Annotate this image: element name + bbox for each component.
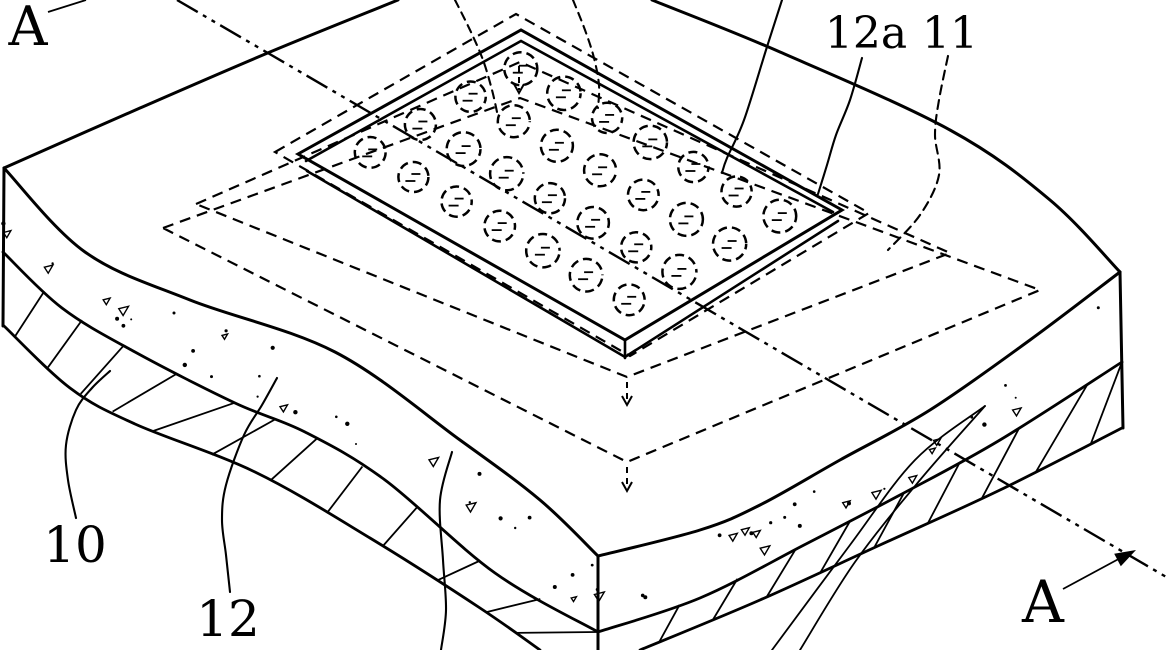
stipple-triangle (1013, 408, 1022, 416)
stipple-dot (571, 573, 575, 577)
stipple-dot (257, 396, 259, 398)
ref-label-12: 12 (196, 590, 260, 648)
section-label-a-bottom-right: A (1021, 568, 1065, 636)
section-label-a-top-left: A (8, 0, 49, 58)
stud (504, 52, 537, 85)
stud (722, 176, 752, 206)
stipple-dot (553, 585, 557, 589)
layer-bottom-left (3, 325, 540, 650)
stud (584, 154, 616, 186)
stud (442, 187, 472, 217)
stipple-dot (469, 501, 471, 503)
ref-label-11: 11 (922, 8, 978, 59)
stipple-dot (813, 490, 816, 493)
hatch-line (15, 291, 44, 336)
stipple-dot (1015, 397, 1017, 399)
stipple-triangle (119, 306, 129, 315)
hatch-line (81, 345, 124, 394)
stipple-dot (1097, 306, 1100, 309)
stipple-dot (335, 416, 338, 419)
slab-left-vertical-edge (3, 168, 4, 326)
stud (541, 130, 573, 162)
stipple-dot (528, 516, 532, 520)
stipple-dot (769, 521, 772, 524)
stud (455, 82, 485, 112)
stipple-dot (798, 524, 802, 528)
stipple-dot (478, 472, 482, 476)
stud (592, 103, 622, 133)
slab-right-vertical-edge (1120, 272, 1123, 428)
stipple-triangle (760, 546, 770, 555)
stipple-triangle (729, 533, 737, 541)
stipple-dot (1004, 384, 1007, 387)
stipple-dot (293, 410, 297, 414)
ref-label-12a: 12a (825, 8, 907, 59)
leader-lines (66, 0, 985, 650)
stud (484, 211, 515, 242)
leader-11-dashed (888, 56, 948, 250)
section-pointer-top-left (48, 0, 86, 12)
hatch-line (383, 507, 417, 546)
stipple-dot (51, 262, 53, 264)
leader-right-sliver-down (800, 406, 985, 650)
layer-boundary-left (3, 252, 598, 632)
leader-bottom-cutoff (440, 452, 452, 650)
hatch-line (113, 374, 178, 412)
stipple-triangle (872, 490, 881, 499)
stipple-dot (596, 588, 599, 591)
stipple-triangle (571, 597, 576, 602)
patent-figure: A 12a 11 10 12 A (0, 0, 1170, 650)
stud (713, 227, 746, 260)
stipple-dot (591, 564, 594, 567)
section-pointer-bottom-right (1063, 555, 1126, 589)
hatch-line (153, 403, 235, 431)
stipple-triangle (103, 298, 110, 305)
stipple-dot (355, 443, 357, 445)
hatch-line (270, 439, 316, 481)
stipple-triangle (280, 405, 288, 412)
stipple-dot (115, 317, 119, 321)
stipple-dot (271, 346, 275, 350)
figure-canvas: A 12a 11 10 12 A (0, 0, 1170, 650)
hatch-line (48, 320, 82, 367)
stipple-triangle (44, 265, 53, 273)
leader-top-dashed-2 (573, 0, 599, 108)
stipple-dot (122, 324, 126, 328)
stipple-triangle (929, 448, 935, 454)
stud (570, 259, 603, 292)
stipple-dot (718, 533, 722, 537)
stipple-triangle (429, 457, 439, 466)
stipple-dot (130, 318, 132, 320)
stud (628, 180, 659, 211)
tray-lip-edge (307, 171, 838, 357)
stipple-triangle (909, 476, 917, 484)
stipple-dot (210, 375, 213, 378)
recess-mid-outline (196, 62, 950, 377)
stud (763, 200, 796, 233)
stud (526, 234, 559, 267)
stud (577, 207, 609, 239)
stud (662, 255, 696, 289)
stipple-dot (793, 502, 797, 506)
stipple-dot (883, 488, 885, 490)
stipple-dot (173, 312, 176, 315)
stipple-triangle (466, 503, 476, 512)
stud (498, 105, 530, 137)
stipple-dot (225, 329, 228, 332)
stipple-dot (1, 221, 5, 225)
stipple-dot (258, 375, 261, 378)
stud (670, 203, 703, 236)
stipple-dot (499, 516, 503, 520)
stipple-dot (982, 422, 986, 426)
stipple-dot (783, 516, 786, 519)
tray-rim-inner-edge (306, 41, 833, 212)
recessed-tray (298, 30, 842, 358)
hatch-line (327, 467, 363, 514)
stipple-dot (191, 349, 195, 353)
stipple-dot (643, 595, 647, 599)
stipple-triangle (222, 334, 228, 339)
stud (398, 162, 428, 192)
leader-10 (66, 371, 110, 518)
stipple-dot (749, 531, 753, 535)
stipple-dot (345, 422, 349, 426)
stud (621, 232, 651, 262)
stipple-triangle (753, 530, 761, 537)
stipple-dot (514, 527, 516, 529)
stud (614, 284, 645, 315)
hatch-layer-left-face (15, 291, 598, 633)
stipple-dot (183, 363, 187, 367)
stipple-triangle (741, 528, 749, 536)
section-chain-line (177, 0, 1168, 578)
recess-opening-outline (275, 14, 869, 356)
hatch-line (486, 599, 540, 612)
stipple-layer-right-face (641, 306, 1100, 599)
ref-label-10: 10 (43, 516, 107, 574)
hatch-line (516, 632, 599, 633)
stud (535, 183, 565, 213)
